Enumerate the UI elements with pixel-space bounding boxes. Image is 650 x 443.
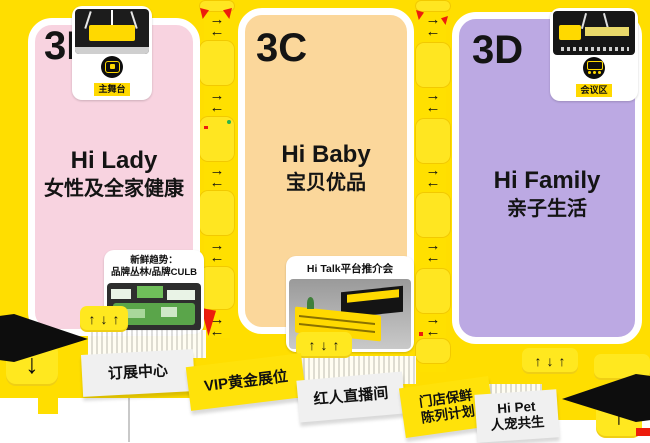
arrow-left-icon: ← [416,177,450,189]
corridor-left-segment [199,40,235,86]
corridor-left-segment [199,190,235,236]
arrow-up-icon: ↑ [535,353,542,369]
icon-thumb [110,64,115,69]
conf-banner [585,27,629,36]
icon-person-dot [588,71,591,74]
arrow-left-icon: ← [200,252,234,264]
zone-3b-title-cn: 女性及全家健康 [36,176,192,203]
ribbon-hi-pet: Hi Pet 人宠共生 [474,389,559,443]
ribbon-booking-center: 订展中心 [81,349,195,397]
arrow-up-icon: ↑ [333,337,340,353]
meeting-screen-icon [583,57,605,79]
zone-3b-title: Hi Lady 女性及全家健康 [36,146,192,203]
corridor-right-segment [415,338,451,364]
zone-3d-id: 3D [472,30,523,70]
booth-green-highlight [127,309,145,318]
two-way-arrows: →← [416,165,450,189]
conference-card: 会议区 [550,8,638,101]
corridor-right-segment [415,268,451,314]
ribbon-vip-label: VIP黄金展位 [203,368,289,396]
red-dot [204,126,208,129]
zone-3c-title-en: Hi Baby [244,140,408,170]
corridor-right-segment [415,118,451,164]
arrow-left-icon: ← [200,26,234,38]
ribbon-livestream-label: 红人直播间 [313,385,389,409]
two-way-arrows: →← [200,165,234,189]
conf-crowd-row [561,47,629,51]
stage-floor [75,47,149,54]
arrow-left-icon: ← [416,252,450,264]
arrow-up-icon: ↑ [309,337,316,353]
two-way-arrows: →← [416,240,450,264]
zone-3d-title-cn: 亲子生活 [458,196,636,223]
booth-green-block [167,290,195,300]
two-way-arrows: →← [200,90,234,114]
fresh-trends-line1: 新鲜趋势： [107,255,201,267]
fresh-trends-line2: 品牌丛林/品牌CULB [107,267,201,279]
booth-green-block [111,289,131,299]
arrow-up-icon: ↑ [559,353,566,369]
exit-tab-3b: ↑↓↑ [80,306,128,332]
zone-3c-title-cn: 宝贝优品 [244,170,408,197]
conf-yellow-booth [559,25,581,40]
arrow-down-icon: ↓ [101,311,108,327]
arrow-left-icon: ← [416,102,450,114]
arrow-left-icon: ← [416,26,450,38]
icon-person-dot [598,71,601,74]
icon-person-dot [593,71,596,74]
booth-green-block [137,286,163,298]
red-corner-mark [636,428,650,436]
two-way-arrows: →← [200,240,234,264]
hi-talk-label: Hi Talk平台推介会 [289,261,411,276]
zone-3d-title-en: Hi Family [458,166,636,196]
exit-tab-3c: ↑↓↑ [296,332,352,358]
zone-3d-title: Hi Family 亲子生活 [458,166,636,223]
corridor-left-segment [199,266,235,310]
zone-3c-title: Hi Baby 宝贝优品 [244,140,408,197]
corridor-right-segment [415,192,451,238]
green-dot [227,120,231,124]
thumbs-up-stage-icon [101,56,123,78]
icon-screen [587,61,603,70]
arrow-up-icon: ↑ [89,311,96,327]
hitalk-plant [307,297,314,309]
divider-line [128,398,130,442]
ribbon-pet-line2: 人宠共生 [490,414,545,434]
main-stage-card: 主舞台 [72,6,152,100]
red-dot [419,332,423,336]
arrow-down-icon: ↓ [547,353,554,369]
ribbon-booking-label: 订展中心 [108,362,169,383]
conference-photo [553,11,635,55]
main-stage-photo [75,9,149,54]
arrow-up-icon: ↑ [113,311,120,327]
exit-tab-3d: ↑↓↑ [522,348,578,374]
stage-backdrop [89,25,135,41]
booth-green-highlight [161,307,177,317]
corridor-right-segment [415,42,451,88]
arrow-down-icon: ↓ [321,337,328,353]
ribbon-livestream-room: 红人直播间 [296,371,405,422]
conference-label: 会议区 [576,84,611,97]
zone-3c-id: 3C [256,28,307,68]
main-stage-label: 主舞台 [94,83,129,96]
expo-floor-map: 3B Hi Lady 女性及全家健康 3C Hi Baby 宝贝优品 3D Hi… [0,0,650,443]
zone-3b-title-en: Hi Lady [36,146,192,176]
arrow-left-icon: ← [200,102,234,114]
arrow-left-icon: ← [200,177,234,189]
two-way-arrows: →← [416,90,450,114]
